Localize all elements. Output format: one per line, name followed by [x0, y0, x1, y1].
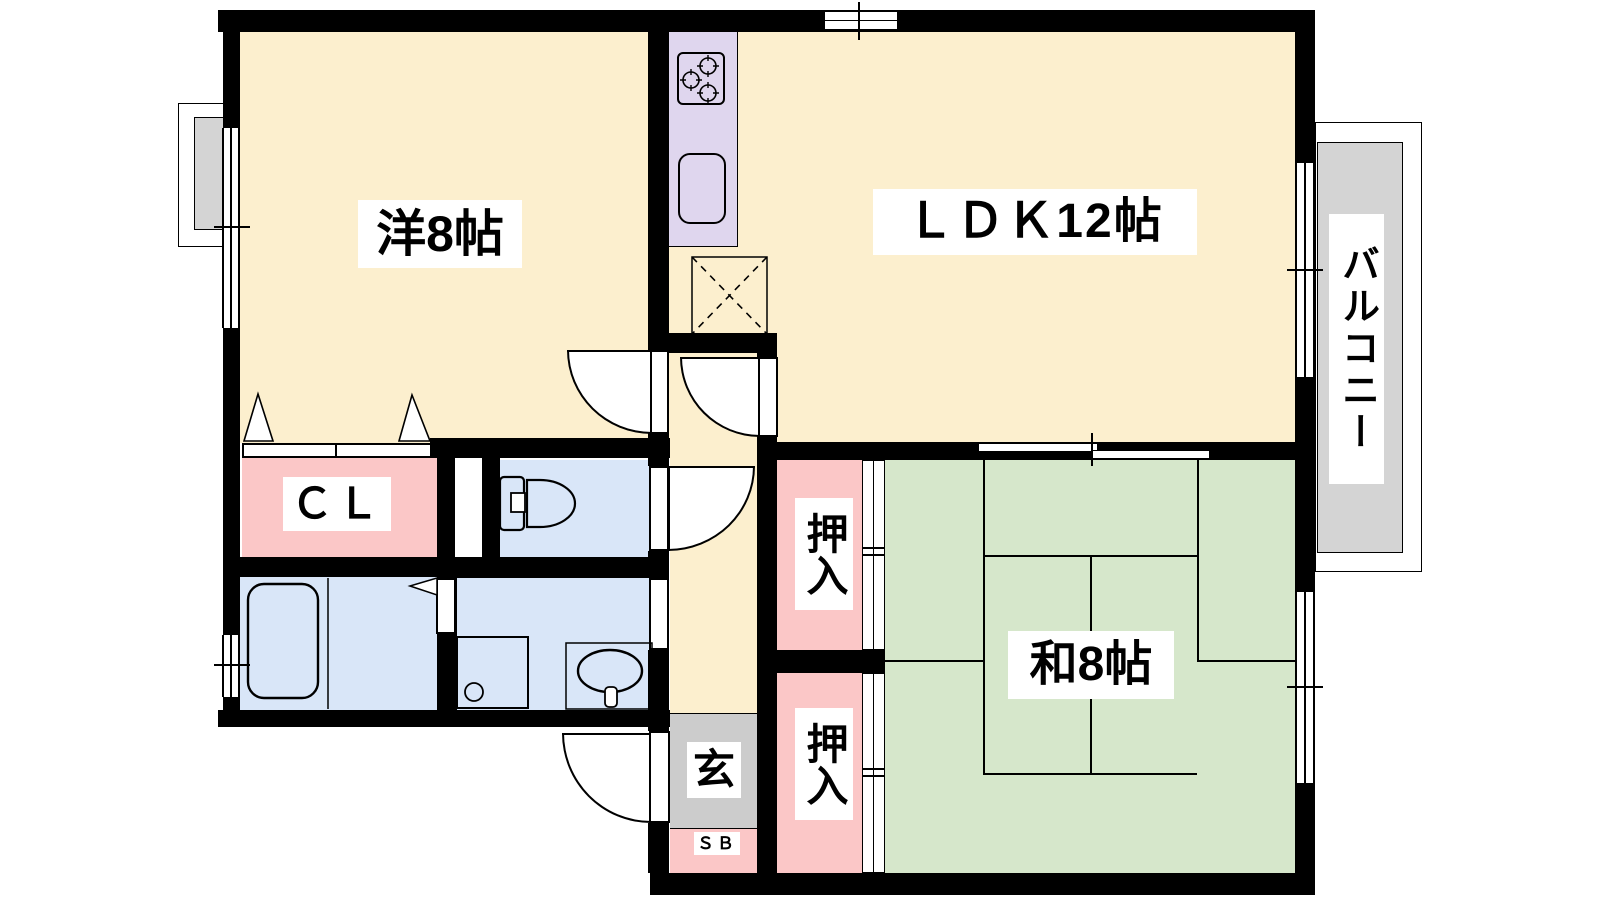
wall	[648, 650, 669, 731]
wall	[223, 10, 240, 727]
room-label-oshiire-lower: 押入	[795, 708, 853, 820]
window-icon	[825, 10, 897, 31]
tatami-line	[1197, 660, 1295, 662]
wall	[223, 557, 457, 577]
room-label-closet: ＣＬ	[283, 477, 391, 531]
bifold-door-divider	[335, 443, 337, 458]
door-leaf	[649, 731, 670, 823]
door-leaf	[649, 466, 669, 551]
door-leaf	[649, 578, 669, 650]
sliding-door-tick	[1091, 433, 1093, 466]
wall	[218, 10, 1315, 32]
room-label-shoebox: ＳＢ	[694, 832, 740, 855]
room-washroom	[457, 577, 652, 710]
sliding-door-icon	[1092, 450, 1210, 459]
folding-door-leaf	[436, 578, 456, 634]
wall	[648, 10, 669, 350]
wall	[757, 437, 777, 873]
window-tick	[214, 226, 250, 228]
fusuma-door	[862, 673, 885, 873]
window-tick	[858, 2, 860, 40]
window-tick	[1287, 269, 1323, 271]
tatami-line	[983, 555, 1197, 557]
sliding-door-icon	[978, 443, 1098, 452]
wall	[648, 823, 669, 873]
room-label-balcony: バルコニー	[1329, 214, 1384, 484]
tatami-line	[1197, 460, 1199, 660]
window-tick	[1287, 686, 1323, 688]
room-label-ldk: ＬＤＫ12帖	[873, 189, 1197, 255]
service-balcony	[194, 117, 224, 230]
room-label-western: 洋8帖	[358, 200, 522, 268]
wall	[650, 873, 1315, 895]
window-icon	[222, 635, 240, 697]
bifold-door-icon	[242, 443, 432, 458]
wall	[482, 458, 500, 557]
window-tick	[214, 664, 250, 666]
wall	[218, 710, 670, 727]
room-label-entrance: 玄	[687, 742, 741, 798]
tatami-line	[983, 773, 1197, 775]
fusuma-door	[862, 460, 885, 650]
tatami-line	[983, 460, 985, 773]
room-toilet	[500, 460, 652, 557]
room-label-japanese: 和8帖	[1008, 631, 1174, 699]
wall	[430, 438, 670, 458]
wall	[457, 557, 652, 578]
tatami-line	[885, 660, 983, 662]
wall	[437, 458, 455, 557]
window-icon	[222, 128, 240, 328]
floor-plan: 洋8帖 ＬＤＫ12帖 和8帖 バルコニー ＣＬ 押入 押入 玄 ＳＢ	[0, 0, 1600, 900]
room-bathroom	[240, 577, 437, 710]
room-label-oshiire-upper: 押入	[795, 498, 853, 610]
kitchen-counter	[668, 30, 738, 247]
wall	[650, 333, 777, 353]
wall	[777, 650, 885, 673]
door-leaf	[757, 357, 778, 437]
entrance-door-icon	[562, 733, 651, 823]
